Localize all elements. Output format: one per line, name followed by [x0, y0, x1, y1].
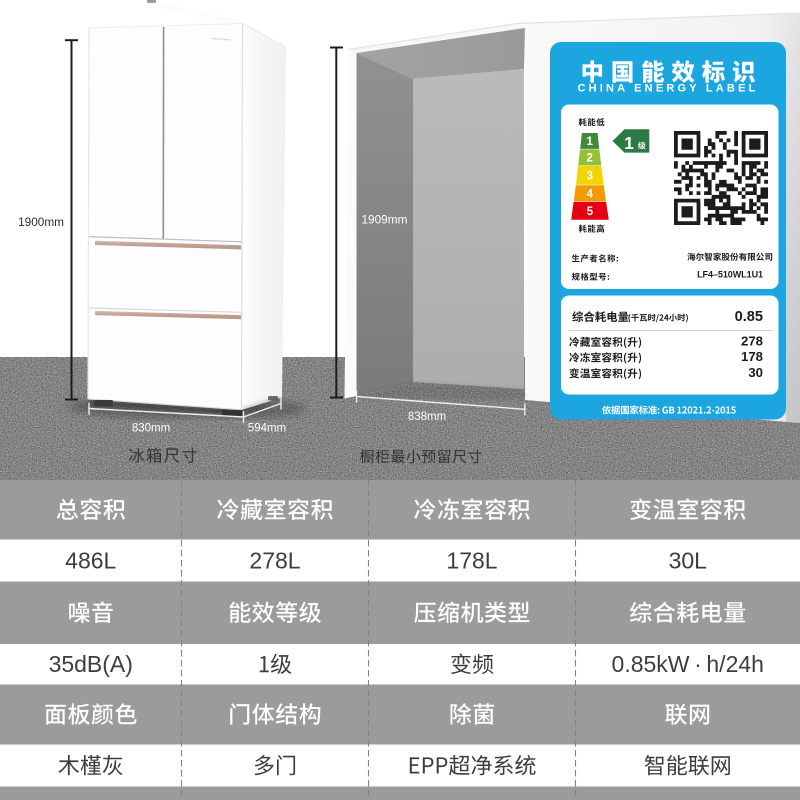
svg-text:178L: 178L: [446, 548, 497, 574]
svg-text:4: 4: [587, 189, 594, 201]
svg-text:2: 2: [586, 153, 592, 165]
svg-text:838mm: 838mm: [408, 411, 446, 423]
svg-text:0.85: 0.85: [735, 309, 763, 325]
svg-text:CHINA ENERGY LABEL: CHINA ENERGY LABEL: [577, 83, 758, 95]
svg-text:486L: 486L: [65, 548, 116, 574]
svg-text:830mm: 830mm: [132, 423, 170, 435]
svg-text:30L: 30L: [669, 548, 708, 574]
svg-text:1: 1: [624, 133, 634, 153]
svg-text:35dB(A): 35dB(A): [49, 651, 133, 677]
svg-text:178: 178: [741, 349, 763, 364]
svg-text:594mm: 594mm: [248, 423, 286, 435]
svg-text:1900mm: 1900mm: [18, 215, 64, 229]
svg-text:30: 30: [748, 365, 763, 380]
svg-text:LF4–510WL1U1: LF4–510WL1U1: [697, 270, 763, 280]
svg-text:5: 5: [587, 206, 594, 218]
svg-text:278: 278: [741, 334, 763, 349]
svg-text:1: 1: [586, 136, 593, 148]
svg-text:278L: 278L: [249, 548, 300, 574]
svg-text:0.85kW · h/24h: 0.85kW · h/24h: [612, 651, 764, 677]
svg-text:3: 3: [587, 171, 593, 183]
svg-text:1909mm: 1909mm: [362, 213, 408, 227]
